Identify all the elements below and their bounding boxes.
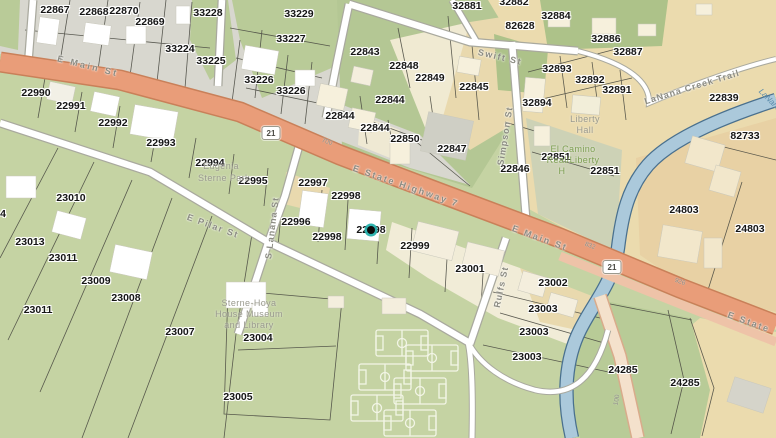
place-label: Hall <box>576 125 593 135</box>
parcel-label[interactable]: 22998 <box>331 190 360 202</box>
parcel-label[interactable]: 4 <box>0 208 6 220</box>
place-label: Sterne Park <box>198 173 250 183</box>
parcel-label[interactable]: 82733 <box>730 130 759 142</box>
address-label: 700 <box>321 137 333 147</box>
parcel-label[interactable]: 22844 <box>325 110 354 122</box>
parcel-label[interactable]: 23002 <box>538 277 567 289</box>
parcel-label[interactable]: 22848 <box>389 60 418 72</box>
parcel-label[interactable]: 33225 <box>196 55 225 67</box>
parcel-label[interactable]: 82628 <box>505 20 534 32</box>
parcel-label[interactable]: 22847 <box>437 143 466 155</box>
parcel-label[interactable]: 24803 <box>669 204 698 216</box>
parcel-label[interactable]: 22839 <box>709 92 738 104</box>
parcel-label[interactable]: 22844 <box>375 94 404 106</box>
parcel-label[interactable]: 22996 <box>281 216 310 228</box>
parcel-label[interactable]: 22851 <box>590 165 619 177</box>
parcel-label[interactable]: 22992 <box>98 117 127 129</box>
parcel-label[interactable]: 32881 <box>452 0 481 12</box>
street-label: E Main St <box>56 54 120 79</box>
street-label: E Main St <box>511 223 569 252</box>
parcel-label[interactable]: 24285 <box>670 377 699 389</box>
street-label: Swift St <box>477 47 523 67</box>
parcel-label[interactable]: 32892 <box>575 74 604 86</box>
parcel-label[interactable]: 23011 <box>49 252 78 264</box>
parcel-label[interactable]: 23013 <box>15 236 44 248</box>
parcel-label[interactable]: 32893 <box>542 63 571 75</box>
parcel-label[interactable]: 32886 <box>591 33 620 45</box>
parcel-label[interactable]: 24285 <box>608 364 637 376</box>
parcel-label[interactable]: 23003 <box>528 303 557 315</box>
parcel-label[interactable]: 22867 <box>40 4 69 16</box>
parcel-label[interactable]: 23007 <box>165 326 194 338</box>
selected-parcel-marker[interactable] <box>367 226 375 234</box>
parcel-label[interactable]: 22999 <box>400 240 429 252</box>
parcel-label[interactable]: 32891 <box>602 84 631 96</box>
place-label: H <box>559 166 566 176</box>
parcel-label[interactable]: 22993 <box>146 137 175 149</box>
parcel-label[interactable]: 22870 <box>109 5 138 17</box>
place-label: House Museum <box>215 309 283 319</box>
street-label: E State <box>726 310 771 335</box>
place-label: El Camino <box>550 144 595 154</box>
street-label: Simpson St <box>495 106 514 166</box>
place-label: Liberty <box>570 114 600 124</box>
parcel-label[interactable]: 23008 <box>111 292 140 304</box>
parcel-label[interactable]: 22869 <box>135 16 164 28</box>
parcel-label[interactable]: 33229 <box>284 8 313 20</box>
place-label: Sterne-Hoya <box>222 298 277 308</box>
parcel-label[interactable]: 23001 <box>455 263 484 275</box>
parcel-label[interactable]: 23009 <box>81 275 110 287</box>
place-label: Real/Liberty <box>547 155 600 165</box>
address-label: 926 <box>674 277 687 287</box>
highway-route-shield: 21 <box>262 126 281 140</box>
parcel-label[interactable]: 23005 <box>223 391 252 403</box>
parcel-label[interactable]: 24803 <box>735 223 764 235</box>
parcel-label[interactable]: 32884 <box>541 10 570 22</box>
address-label: 832 <box>584 241 597 251</box>
parcel-label[interactable]: 22845 <box>459 81 488 93</box>
street-label: E Pilar St <box>186 212 241 240</box>
parcel-label[interactable]: 23003 <box>512 351 541 363</box>
parcel-label[interactable]: 22843 <box>350 46 379 58</box>
parcel-label[interactable]: 22849 <box>415 72 444 84</box>
parcel-label[interactable]: 22868 <box>79 6 108 18</box>
parcel-label[interactable]: 32882 <box>499 0 528 8</box>
water-label: LaNana <box>757 87 776 113</box>
address-label: 100 <box>613 394 622 406</box>
parcel-label[interactable]: 23004 <box>243 332 272 344</box>
parcel-label[interactable]: 22998 <box>312 231 341 243</box>
place-label: and Library <box>224 320 273 330</box>
street-label: S Lanana St <box>263 196 281 259</box>
parcel-label[interactable]: 22990 <box>21 87 50 99</box>
highway-route-shield: 21 <box>603 260 622 274</box>
parcel-label[interactable]: 22997 <box>298 177 327 189</box>
parcel-label[interactable]: 23003 <box>519 326 548 338</box>
parcel-label[interactable]: 23010 <box>56 192 85 204</box>
map-canvas[interactable]: 2286722868228702286933228332243322533229… <box>0 0 776 438</box>
parcel-label[interactable]: 23011 <box>24 304 53 316</box>
parcel-label[interactable]: 33226 <box>244 74 273 86</box>
parcel-label[interactable]: 33224 <box>165 43 194 55</box>
street-label: E State Highway 7 <box>352 163 461 209</box>
parcel-label[interactable]: 32894 <box>522 97 551 109</box>
parcel-label[interactable]: 22991 <box>56 100 85 112</box>
parcel-label[interactable]: 22850 <box>390 133 419 145</box>
parcel-label[interactable]: 33227 <box>276 33 305 45</box>
place-label: Eugenia <box>203 161 239 171</box>
parcel-label[interactable]: 22844 <box>360 122 389 134</box>
label-layer: 2286722868228702286933228332243322533229… <box>0 0 776 438</box>
parcel-label[interactable]: 32887 <box>613 46 642 58</box>
street-label: Rulfs St <box>492 265 511 308</box>
parcel-label[interactable]: 33228 <box>193 7 222 19</box>
parcel-label[interactable]: 33226 <box>276 85 305 97</box>
